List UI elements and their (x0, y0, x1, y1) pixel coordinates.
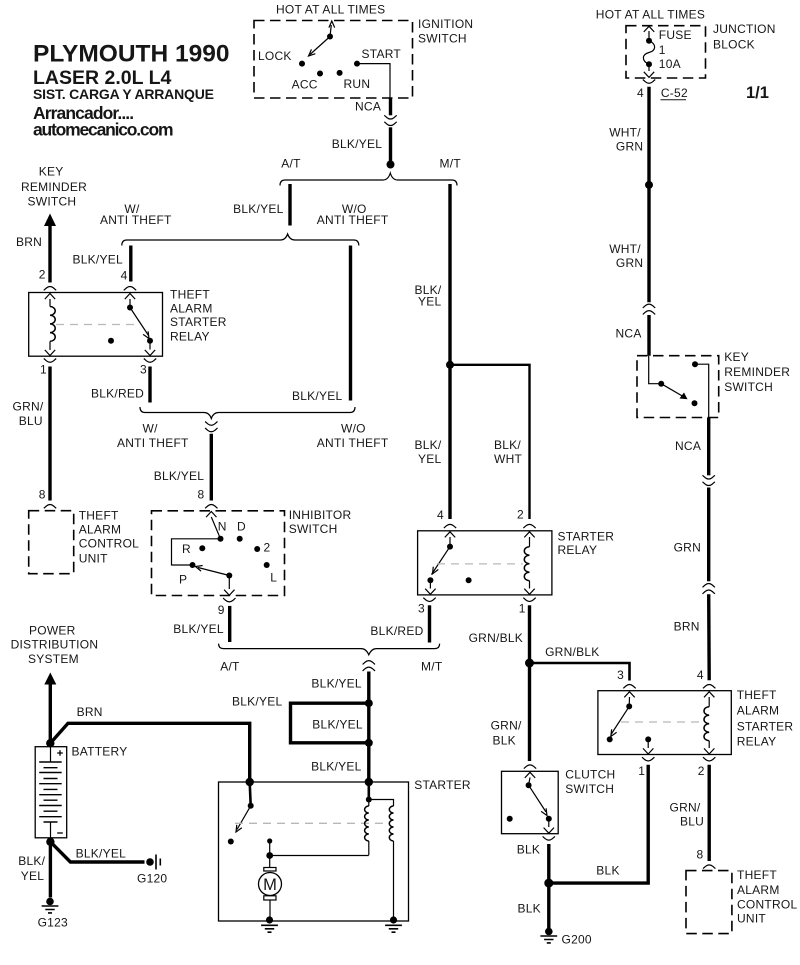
svg-text:L: L (270, 571, 277, 585)
svg-text:INHIBITOR: INHIBITOR (289, 508, 352, 522)
svg-text:REMINDER: REMINDER (724, 365, 790, 379)
svg-text:BLK/YEL: BLK/YEL (233, 202, 284, 216)
svg-text:8: 8 (697, 848, 704, 862)
svg-text:BLK/YEL: BLK/YEL (76, 847, 127, 861)
svg-text:3: 3 (617, 668, 624, 682)
svg-text:BLOCK: BLOCK (713, 38, 755, 52)
svg-text:GRN: GRN (616, 256, 643, 270)
svg-text:BLK/RED: BLK/RED (370, 624, 423, 638)
svg-text:ALARM: ALARM (79, 523, 122, 537)
svg-text:CONTROL: CONTROL (737, 897, 797, 911)
svg-text:KEY: KEY (39, 165, 64, 179)
svg-text:M/T: M/T (440, 156, 462, 170)
svg-text:3: 3 (140, 363, 147, 377)
svg-text:GRN/: GRN/ (13, 400, 44, 414)
svg-text:STARTER: STARTER (170, 315, 227, 329)
svg-text:BLK/YEL: BLK/YEL (312, 717, 363, 731)
svg-text:1: 1 (519, 601, 526, 615)
svg-text:NCA: NCA (355, 99, 381, 113)
svg-text:9: 9 (218, 603, 225, 617)
svg-text:2: 2 (264, 541, 271, 555)
svg-text:8: 8 (39, 488, 46, 502)
svg-text:DISTRIBUTION: DISTRIBUTION (11, 638, 99, 652)
svg-text:G120: G120 (137, 871, 167, 885)
svg-text:HOT AT ALL TIMES: HOT AT ALL TIMES (596, 7, 705, 21)
svg-text:BLK/YEL: BLK/YEL (311, 676, 362, 690)
svg-text:2: 2 (698, 764, 705, 778)
svg-text:BLK/: BLK/ (415, 438, 442, 452)
svg-text:RELAY: RELAY (558, 543, 598, 557)
svg-text:G200: G200 (562, 933, 592, 947)
svg-text:10A: 10A (659, 57, 681, 71)
svg-text:BLU: BLU (680, 815, 704, 829)
svg-text:SWITCH: SWITCH (28, 195, 77, 209)
svg-text:UNIT: UNIT (737, 912, 766, 926)
svg-text:ALARM: ALARM (737, 883, 780, 897)
svg-text:automecanico.com: automecanico.com (33, 120, 173, 140)
svg-text:BLK: BLK (517, 842, 540, 856)
svg-text:D: D (237, 520, 246, 534)
svg-text:1: 1 (40, 363, 47, 377)
svg-text:UNIT: UNIT (79, 552, 108, 566)
svg-text:BLK/YEL: BLK/YEL (292, 389, 343, 403)
svg-text:CONTROL: CONTROL (79, 537, 139, 551)
svg-text:M: M (263, 876, 277, 894)
svg-text:RELAY: RELAY (737, 735, 777, 749)
svg-text:KEY: KEY (724, 350, 749, 364)
svg-text:3: 3 (418, 601, 425, 615)
svg-text:SWITCH: SWITCH (289, 522, 338, 536)
svg-text:FUSE: FUSE (659, 28, 692, 42)
svg-text:4: 4 (697, 668, 704, 682)
svg-text:R: R (182, 542, 191, 556)
svg-text:1: 1 (659, 43, 666, 57)
svg-text:ACC: ACC (292, 78, 318, 92)
svg-text:2: 2 (39, 268, 46, 282)
svg-text:ANTI THEFT: ANTI THEFT (117, 436, 189, 450)
svg-text:PLYMOUTH 1990: PLYMOUTH 1990 (33, 41, 230, 68)
svg-text:G123: G123 (38, 915, 68, 929)
svg-text:WHT/: WHT/ (609, 126, 641, 140)
svg-text:ALARM: ALARM (170, 302, 213, 316)
svg-text:N: N (218, 520, 227, 534)
svg-text:GRN: GRN (674, 541, 701, 555)
svg-text:THEFT: THEFT (170, 288, 210, 302)
svg-text:C-52: C-52 (661, 86, 688, 100)
svg-text:SYSTEM: SYSTEM (28, 652, 79, 666)
svg-text:JUNCTION: JUNCTION (713, 22, 776, 36)
svg-text:4: 4 (437, 508, 444, 522)
svg-text:IGNITION: IGNITION (418, 17, 473, 31)
svg-text:BRN: BRN (16, 235, 42, 249)
svg-text:BLK/YEL: BLK/YEL (332, 137, 383, 151)
svg-text:BLK/YEL: BLK/YEL (232, 695, 283, 709)
svg-text:BLU: BLU (19, 414, 43, 428)
svg-text:P: P (179, 572, 187, 586)
svg-text:ANTI THEFT: ANTI THEFT (100, 213, 172, 227)
svg-text:W/: W/ (143, 422, 159, 436)
svg-text:GRN: GRN (616, 140, 643, 154)
svg-text:8: 8 (198, 488, 205, 502)
svg-text:GRN/BLK: GRN/BLK (469, 631, 523, 645)
svg-text:W/O: W/O (341, 422, 366, 436)
svg-text:BLK: BLK (518, 902, 541, 916)
svg-text:BLK/YEL: BLK/YEL (73, 253, 124, 267)
svg-text:BATTERY: BATTERY (72, 744, 128, 758)
svg-text:GRN/: GRN/ (491, 718, 522, 732)
svg-text:BRN: BRN (674, 619, 700, 633)
svg-text:THEFT: THEFT (737, 688, 777, 702)
svg-text:SIST. CARGA Y ARRANQUE: SIST. CARGA Y ARRANQUE (33, 86, 214, 102)
svg-text:THEFT: THEFT (79, 509, 119, 523)
svg-text:WHT: WHT (494, 452, 522, 466)
svg-text:START: START (362, 47, 402, 61)
svg-text:STARTER: STARTER (414, 778, 471, 792)
svg-text:POWER: POWER (29, 624, 76, 638)
svg-text:RELAY: RELAY (170, 330, 210, 344)
svg-text:NCA: NCA (675, 439, 701, 453)
svg-text:STARTER: STARTER (737, 719, 794, 733)
svg-text:4: 4 (121, 268, 128, 282)
svg-text:THEFT: THEFT (737, 868, 777, 882)
svg-text:1: 1 (638, 764, 645, 778)
svg-text:2: 2 (517, 508, 524, 522)
svg-text:WHT/: WHT/ (609, 242, 641, 256)
svg-text:SWITCH: SWITCH (565, 782, 614, 796)
svg-text:YEL: YEL (418, 295, 442, 309)
svg-text:4: 4 (637, 86, 644, 100)
svg-text:BLK/YEL: BLK/YEL (311, 760, 362, 774)
svg-text:BRN: BRN (77, 705, 103, 719)
svg-text:BLK: BLK (493, 733, 516, 747)
svg-text:BLK/YEL: BLK/YEL (154, 469, 205, 483)
svg-text:ANTI THEFT: ANTI THEFT (317, 213, 389, 227)
svg-text:BLK/YEL: BLK/YEL (173, 622, 224, 636)
svg-text:BLK/: BLK/ (18, 854, 45, 868)
svg-text:A/T: A/T (220, 660, 240, 674)
svg-text:LOCK: LOCK (258, 49, 292, 63)
svg-text:SWITCH: SWITCH (418, 32, 467, 46)
svg-text:SWITCH: SWITCH (724, 380, 773, 394)
svg-text:REMINDER: REMINDER (21, 180, 87, 194)
svg-text:BLK/: BLK/ (494, 438, 521, 452)
svg-text:CLUTCH: CLUTCH (565, 768, 615, 782)
svg-text:GRN/BLK: GRN/BLK (545, 645, 599, 659)
svg-text:ALARM: ALARM (737, 704, 780, 718)
svg-text:1/1: 1/1 (746, 84, 769, 102)
svg-text:ANTI THEFT: ANTI THEFT (317, 436, 389, 450)
svg-text:YEL: YEL (418, 452, 442, 466)
svg-text:BLK/RED: BLK/RED (91, 387, 144, 401)
svg-text:STARTER: STARTER (558, 529, 615, 543)
svg-text:YEL: YEL (21, 869, 45, 883)
svg-text:RUN: RUN (344, 77, 371, 91)
svg-text:BLK: BLK (596, 863, 619, 877)
svg-text:HOT AT ALL TIMES: HOT AT ALL TIMES (276, 3, 385, 17)
svg-text:GRN/: GRN/ (670, 801, 701, 815)
svg-text:M/T: M/T (421, 660, 443, 674)
svg-text:NCA: NCA (616, 327, 642, 341)
svg-text:A/T: A/T (281, 156, 301, 170)
